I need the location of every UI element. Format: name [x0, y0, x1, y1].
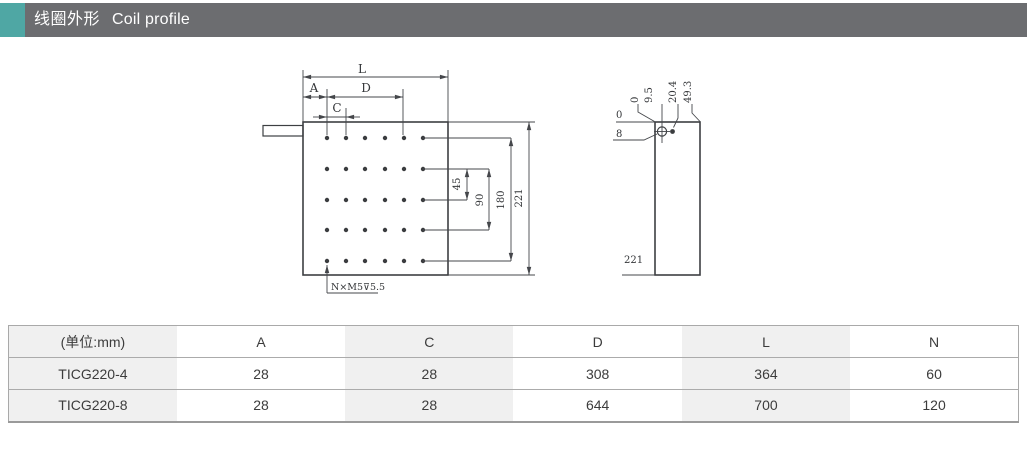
side-extension-lines [616, 122, 655, 275]
value-cell-A: 28 [177, 358, 345, 390]
section-title-en: Coil profile [112, 11, 190, 28]
section-header-bar: 线圈外形Coil profile [0, 3, 1027, 37]
col-header-N: N [850, 326, 1018, 358]
coil-profile-svg: L A D C 45 90 180 221 N×M5⊽5.5 [250, 55, 720, 310]
side-label-49-3: 49.3 [683, 81, 694, 103]
dim-label-45: 45 [452, 178, 463, 191]
leader-0-top [638, 104, 655, 122]
dim-label-90: 90 [475, 194, 486, 207]
mounting-holes [325, 136, 425, 263]
leader-49-3 [692, 104, 700, 122]
col-header-L: L [682, 326, 850, 358]
value-cell-C: 28 [345, 358, 513, 390]
section-title-zh: 线圈外形 [34, 11, 100, 28]
value-cell-N: 60 [850, 358, 1018, 390]
front-view: L A D C 45 90 180 221 N×M5⊽5.5 [263, 62, 535, 293]
coil-profile-drawing: L A D C 45 90 180 221 N×M5⊽5.5 [250, 55, 720, 310]
side-label-221: 221 [624, 255, 643, 266]
accent-square [0, 3, 25, 37]
table-row: TICG220-8 28 28 644 700 120 [9, 390, 1019, 422]
dim-label-L: L [358, 62, 366, 76]
spec-table: (单位:mm) A C D L N TICG220-4 28 28 308 36… [8, 325, 1019, 423]
dim-label-180: 180 [496, 190, 507, 209]
hole-note-label: N×M5⊽5.5 [331, 282, 385, 293]
col-header-D: D [513, 326, 681, 358]
model-cell: TICG220-8 [9, 390, 177, 422]
value-cell-A: 28 [177, 390, 345, 422]
value-cell-D: 308 [513, 358, 681, 390]
table-header-row: (单位:mm) A C D L N [9, 326, 1019, 358]
value-cell-D: 644 [513, 390, 681, 422]
table-row: TICG220-4 28 28 308 364 60 [9, 358, 1019, 390]
dim-label-A: A [309, 81, 319, 95]
value-cell-N: 120 [850, 390, 1018, 422]
side-label-0-left: 0 [616, 110, 622, 121]
value-cell-C: 28 [345, 390, 513, 422]
small-hole-dot [670, 129, 675, 134]
col-header-C: C [345, 326, 513, 358]
model-cell: TICG220-4 [9, 358, 177, 390]
side-label-0-top: 0 [630, 97, 641, 103]
leader-20-4 [674, 104, 679, 128]
side-view: 0 9.5 20.4 49.3 0 8 221 [613, 81, 700, 275]
col-header-A: A [177, 326, 345, 358]
side-label-9-5: 9.5 [644, 87, 655, 103]
side-label-20-4: 20.4 [668, 81, 679, 103]
side-profile-outline [655, 122, 700, 275]
side-label-8: 8 [616, 129, 622, 140]
coil-body-outline [303, 122, 448, 275]
section-title: 线圈外形Coil profile [34, 3, 190, 37]
dim-label-221: 221 [514, 188, 525, 207]
value-cell-L: 700 [682, 390, 850, 422]
dim-label-C: C [332, 101, 341, 115]
dim-label-D: D [361, 81, 371, 95]
value-cell-L: 364 [682, 358, 850, 390]
terminal-tab [263, 126, 303, 137]
unit-header-cell: (单位:mm) [9, 326, 177, 358]
